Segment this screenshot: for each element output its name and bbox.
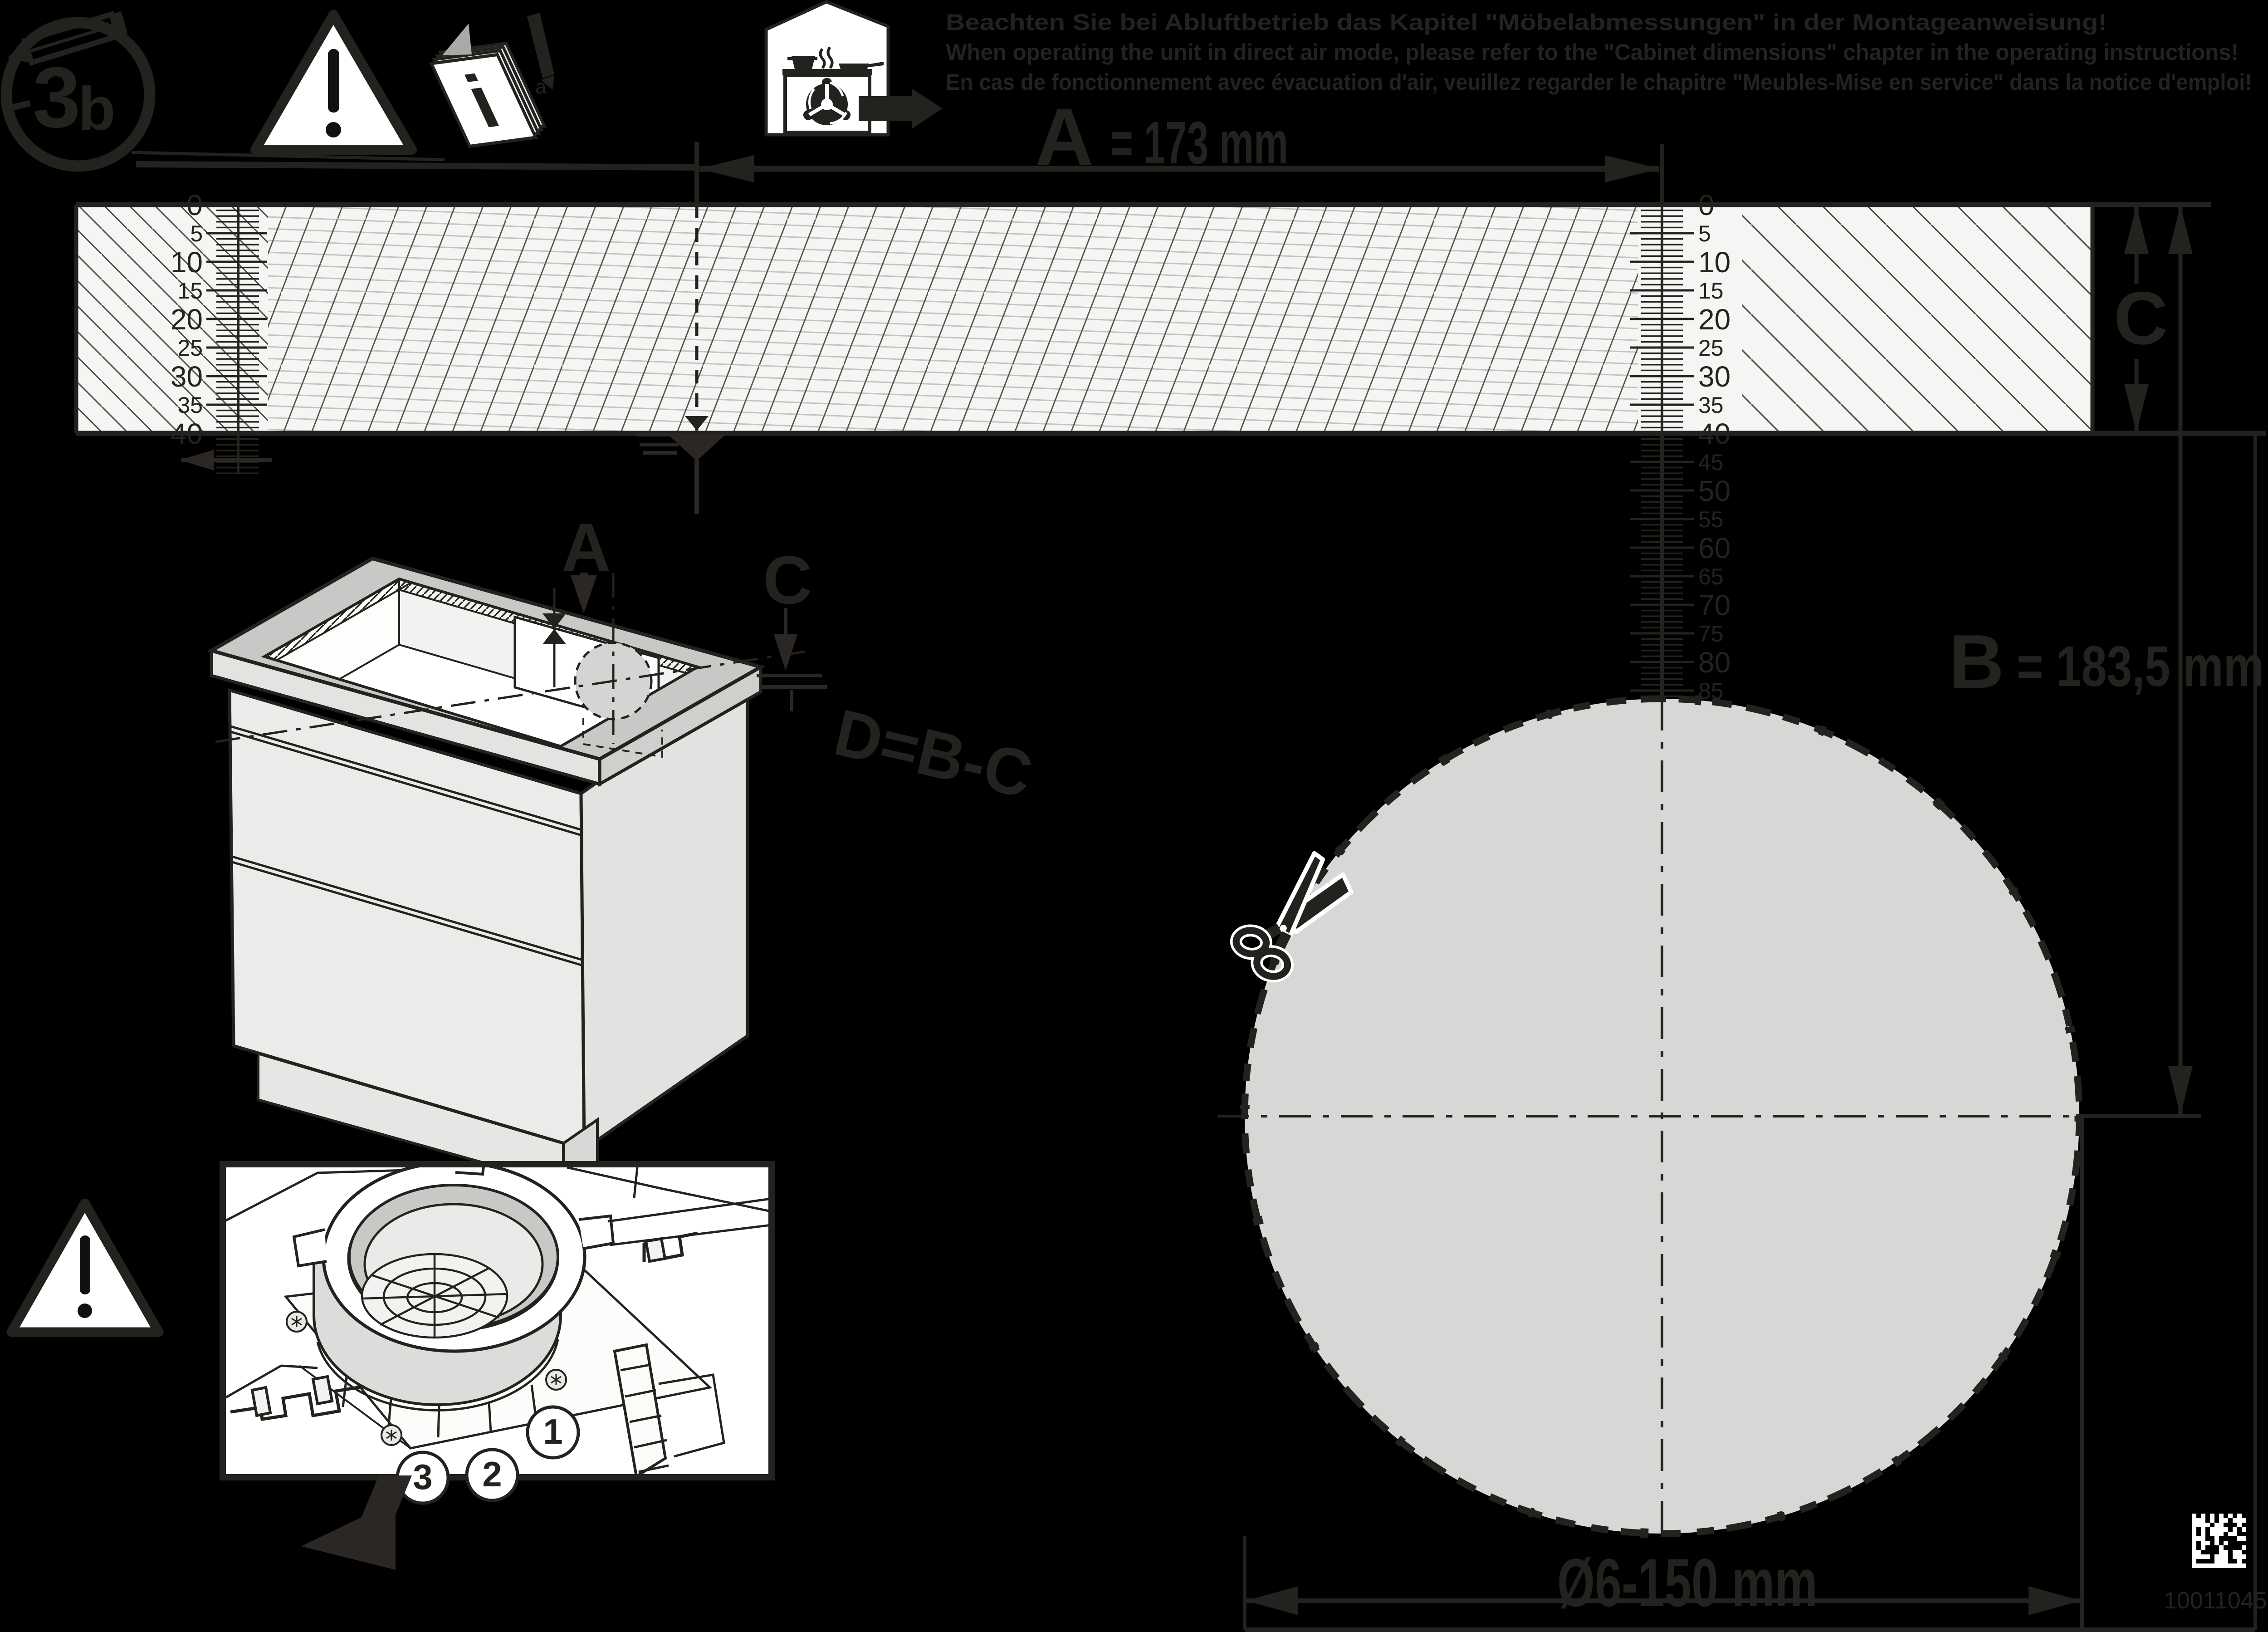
svg-text:B: B xyxy=(1949,619,2004,704)
svg-text:70: 70 xyxy=(1698,589,1730,622)
svg-text:50: 50 xyxy=(1698,475,1730,507)
svg-text:= 183,5 mm: = 183,5 mm xyxy=(2017,634,2264,698)
svg-text:20: 20 xyxy=(1698,303,1730,336)
svg-text:60: 60 xyxy=(1698,532,1730,564)
svg-text:65: 65 xyxy=(1698,564,1724,589)
svg-text:2: 2 xyxy=(482,1454,502,1494)
svg-text:1: 1 xyxy=(543,1411,562,1451)
svg-text:A: A xyxy=(1035,92,1094,182)
svg-text:3: 3 xyxy=(33,49,81,146)
svg-text:a: a xyxy=(535,76,547,98)
svg-text:5: 5 xyxy=(1698,221,1711,246)
svg-text:10: 10 xyxy=(171,246,203,279)
svg-text:5: 5 xyxy=(190,221,203,246)
svg-text:= 173 mm: = 173 mm xyxy=(1110,109,1288,176)
svg-text:C: C xyxy=(763,542,812,618)
svg-text:25: 25 xyxy=(1698,335,1724,361)
svg-text:15: 15 xyxy=(1698,278,1724,304)
svg-text:b: b xyxy=(78,74,115,143)
svg-text:When operating the unit in dir: When operating the unit in direct air mo… xyxy=(946,39,2239,65)
svg-text:45: 45 xyxy=(1698,450,1724,475)
svg-text:En cas de fonctionnement avec: En cas de fonctionnement avec évacuation… xyxy=(946,69,2252,95)
svg-text:40: 40 xyxy=(1698,417,1730,450)
svg-text:30: 30 xyxy=(171,360,203,393)
svg-text:20: 20 xyxy=(171,303,203,336)
svg-text:Beachten Sie bei Abluftbetrieb: Beachten Sie bei Abluftbetrieb das Kapit… xyxy=(946,10,2107,35)
svg-text:C: C xyxy=(2114,276,2168,360)
svg-text:80: 80 xyxy=(1698,646,1730,679)
svg-text:3: 3 xyxy=(413,1457,432,1497)
svg-text:25: 25 xyxy=(177,335,203,361)
svg-text:35: 35 xyxy=(1698,392,1724,418)
svg-text:55: 55 xyxy=(1698,507,1724,532)
svg-text:30: 30 xyxy=(1698,360,1730,393)
svg-text:Ø6-150 mm: Ø6-150 mm xyxy=(1557,1544,1818,1621)
svg-text:10011045: 10011045 xyxy=(2164,1588,2267,1614)
svg-text:75: 75 xyxy=(1698,621,1724,647)
svg-text:0: 0 xyxy=(1698,189,1715,221)
svg-text:35: 35 xyxy=(177,392,203,418)
svg-text:40: 40 xyxy=(171,417,203,450)
svg-text:10: 10 xyxy=(1698,246,1730,279)
svg-text:15: 15 xyxy=(177,278,203,304)
svg-text:0: 0 xyxy=(186,189,203,221)
